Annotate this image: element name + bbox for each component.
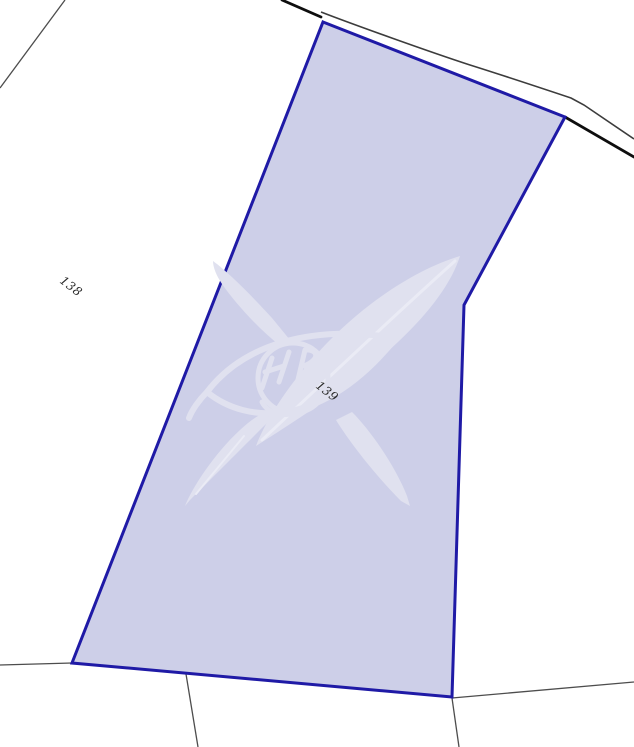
cadastral-map-viewport: 138 139 — [0, 0, 634, 747]
cadastral-map-image: 138 139 — [0, 0, 634, 747]
